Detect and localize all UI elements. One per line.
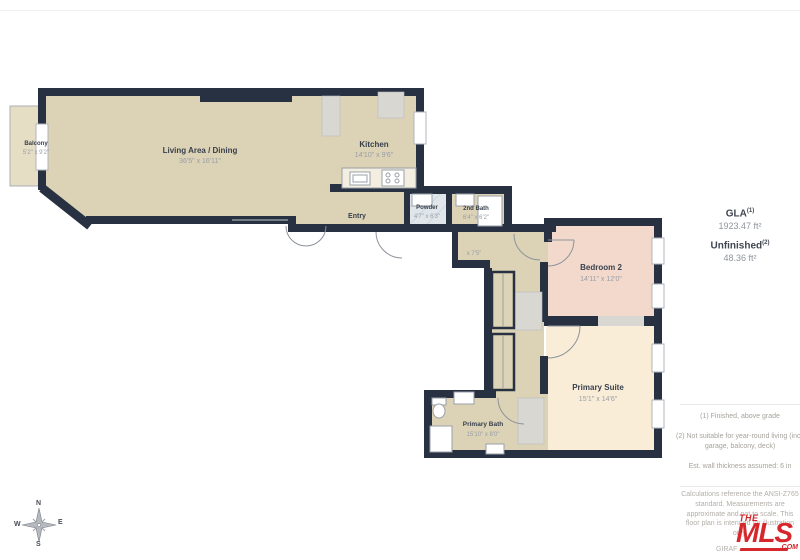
room-dims-kitchen: 14'10" x 9'6" (355, 152, 393, 159)
floor-plan-page: Balcony 5'2" x 9'2" Living Area / Dining… (0, 0, 800, 560)
footnote-1: (1) Finished, above grade (668, 412, 800, 423)
panel-divider-2 (680, 486, 800, 487)
primary-bath-cabinet (454, 392, 474, 404)
gla-heading: GLA(1) (676, 208, 800, 219)
room-dims-hallway: x 7'5" (467, 251, 482, 257)
room-dims-balcony: 5'2" x 9'2" (23, 150, 49, 156)
giraffe-watermark: GIRAF (716, 546, 737, 553)
room-label-hallway: Hallway (462, 241, 496, 250)
primary-bath-shower (430, 426, 452, 452)
unfinished-label: Unfinished (710, 240, 762, 251)
footnotes: (1) Finished, above grade (2) Not suitab… (668, 412, 800, 481)
kitchen-window (414, 112, 426, 144)
room-floor-bedroom2 (548, 224, 656, 322)
compass-rose (22, 508, 56, 542)
room-label-kitchen: Kitchen (359, 141, 388, 149)
gla-label: GLA (726, 208, 747, 219)
room-label-entry: Entry (348, 213, 366, 220)
compass-west-label: W (14, 521, 21, 528)
gla-value: 1923.47 ft² (676, 222, 800, 231)
unfinished-footnote-marker: (2) (762, 240, 769, 246)
room-dims-second-bath: 6'4" x 6'2" (463, 215, 489, 221)
stove (382, 170, 404, 186)
room-label-living: Living Area / Dining (163, 147, 238, 155)
disclaimer-line: Calculations reference the ANSI-Z765 (672, 490, 800, 500)
gla-footnote-marker: (1) (747, 208, 754, 214)
room-label-primary-suite: Primary Suite (572, 384, 624, 392)
unfinished-value: 48.36 ft² (676, 254, 800, 263)
room-floor-living-kitchen-entry (46, 96, 420, 232)
disclaimer-line: standard. Measurements are (672, 500, 800, 510)
compass-south-label: S (36, 541, 41, 548)
room-dims-primary-suite: 15'1" x 14'6" (579, 396, 617, 403)
room-dims-bedroom2: 14'11" x 12'0" (580, 276, 622, 283)
bedroom2-window-1 (652, 238, 664, 264)
room-label-second-bath: 2nd Bath (463, 206, 489, 212)
unfinished-heading: Unfinished(2) (676, 240, 800, 251)
room-dims-living: 36'5" x 16'11" (179, 158, 221, 165)
room-label-primary-bath: Primary Bath (463, 422, 503, 429)
balcony-door-window (36, 124, 48, 170)
compass-east-label: E (58, 519, 63, 526)
room-label-bedroom2: Bedroom 2 (580, 264, 622, 272)
room-dims-primary-bath: 15'10" x 8'0" (467, 432, 500, 438)
themls-logo: THE MLS .COM (736, 514, 798, 556)
primary-suite-window-1 (652, 344, 664, 372)
panel-divider-1 (680, 404, 800, 405)
room-floors (46, 96, 656, 454)
primary-bath-sink (486, 444, 504, 454)
bedroom2-window-2 (652, 284, 664, 308)
room-label-powder: Powder (416, 205, 438, 211)
bath2-sink (456, 194, 474, 206)
themls-logo-com: .COM (780, 544, 798, 551)
primary-bath-toilet (433, 404, 445, 418)
themls-logo-mls: MLS (736, 519, 792, 547)
footnote-2: (2) Not suitable for year-round living (… (668, 432, 800, 453)
room-dims-powder: 4'7" x 6'3" (414, 214, 440, 220)
room-label-balcony: Balcony (24, 141, 47, 147)
primary-suite-window-2 (652, 400, 664, 428)
footnote-3: Est. wall thickness assumed: 6 in (668, 462, 800, 473)
compass-north-label: N (36, 500, 41, 507)
